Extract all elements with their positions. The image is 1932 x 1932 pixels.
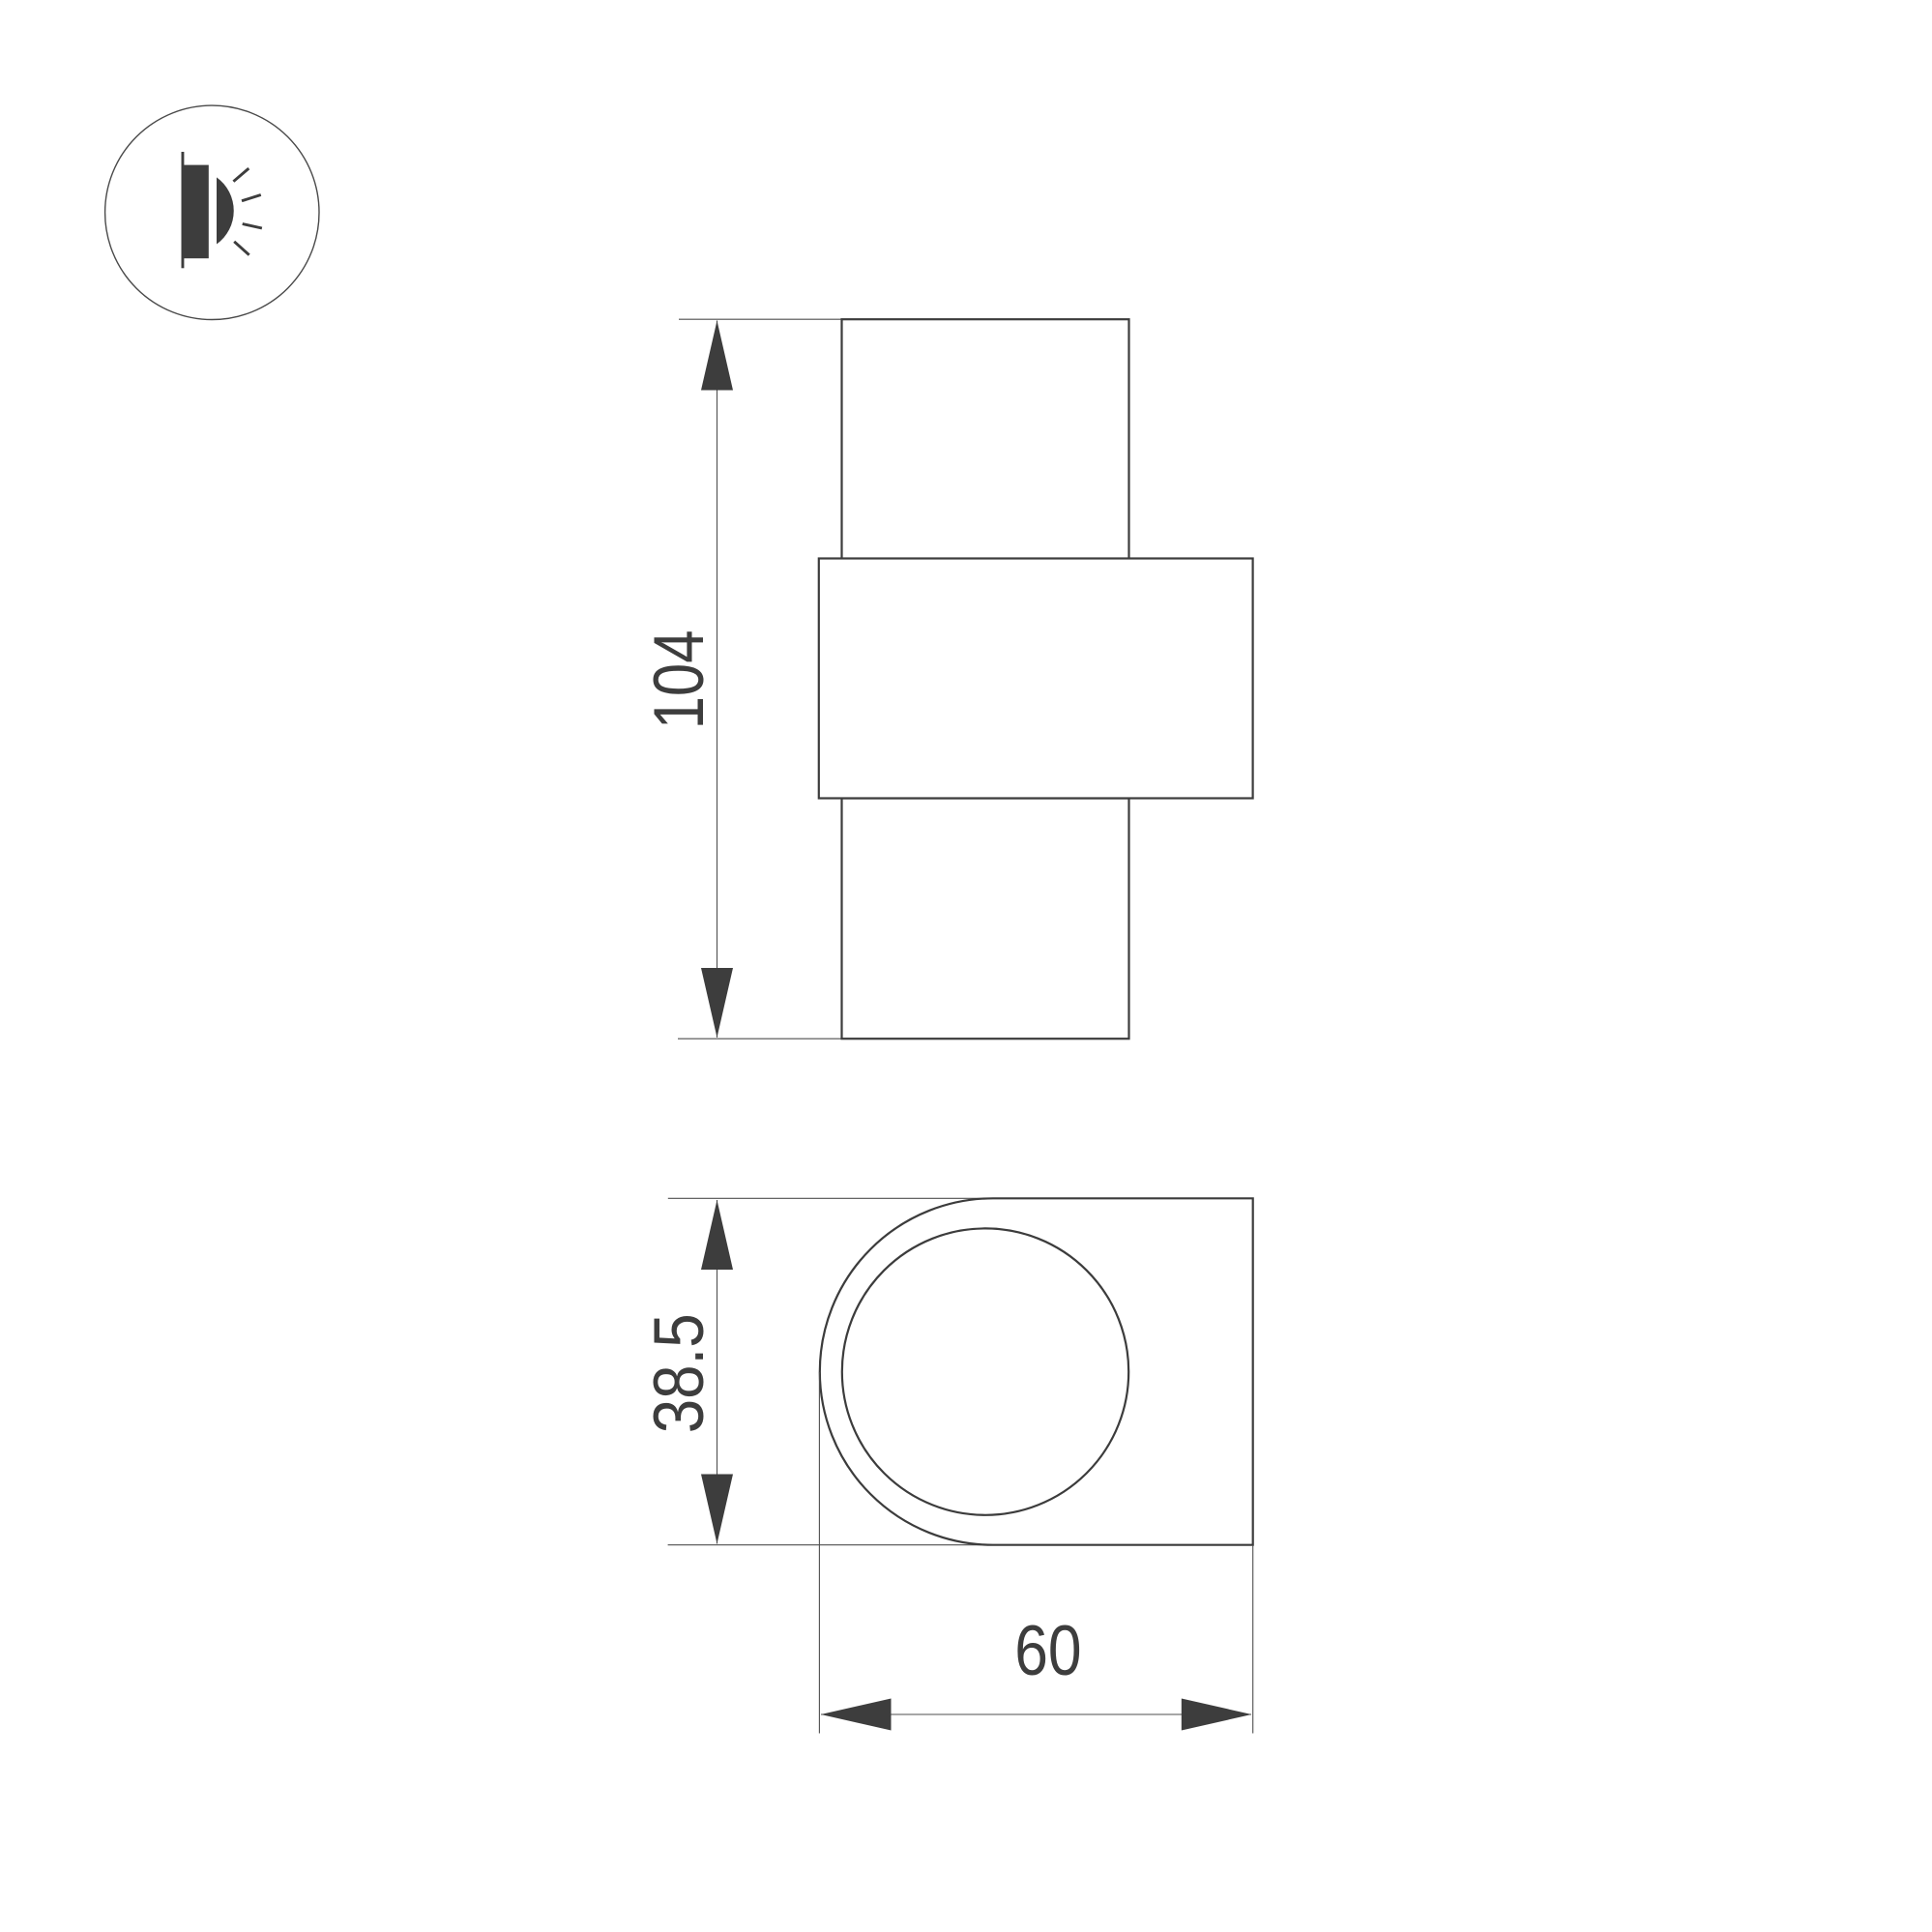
svg-text:60: 60	[1014, 1612, 1081, 1690]
svg-text:104: 104	[640, 629, 718, 729]
svg-text:38.5: 38.5	[640, 1313, 718, 1433]
